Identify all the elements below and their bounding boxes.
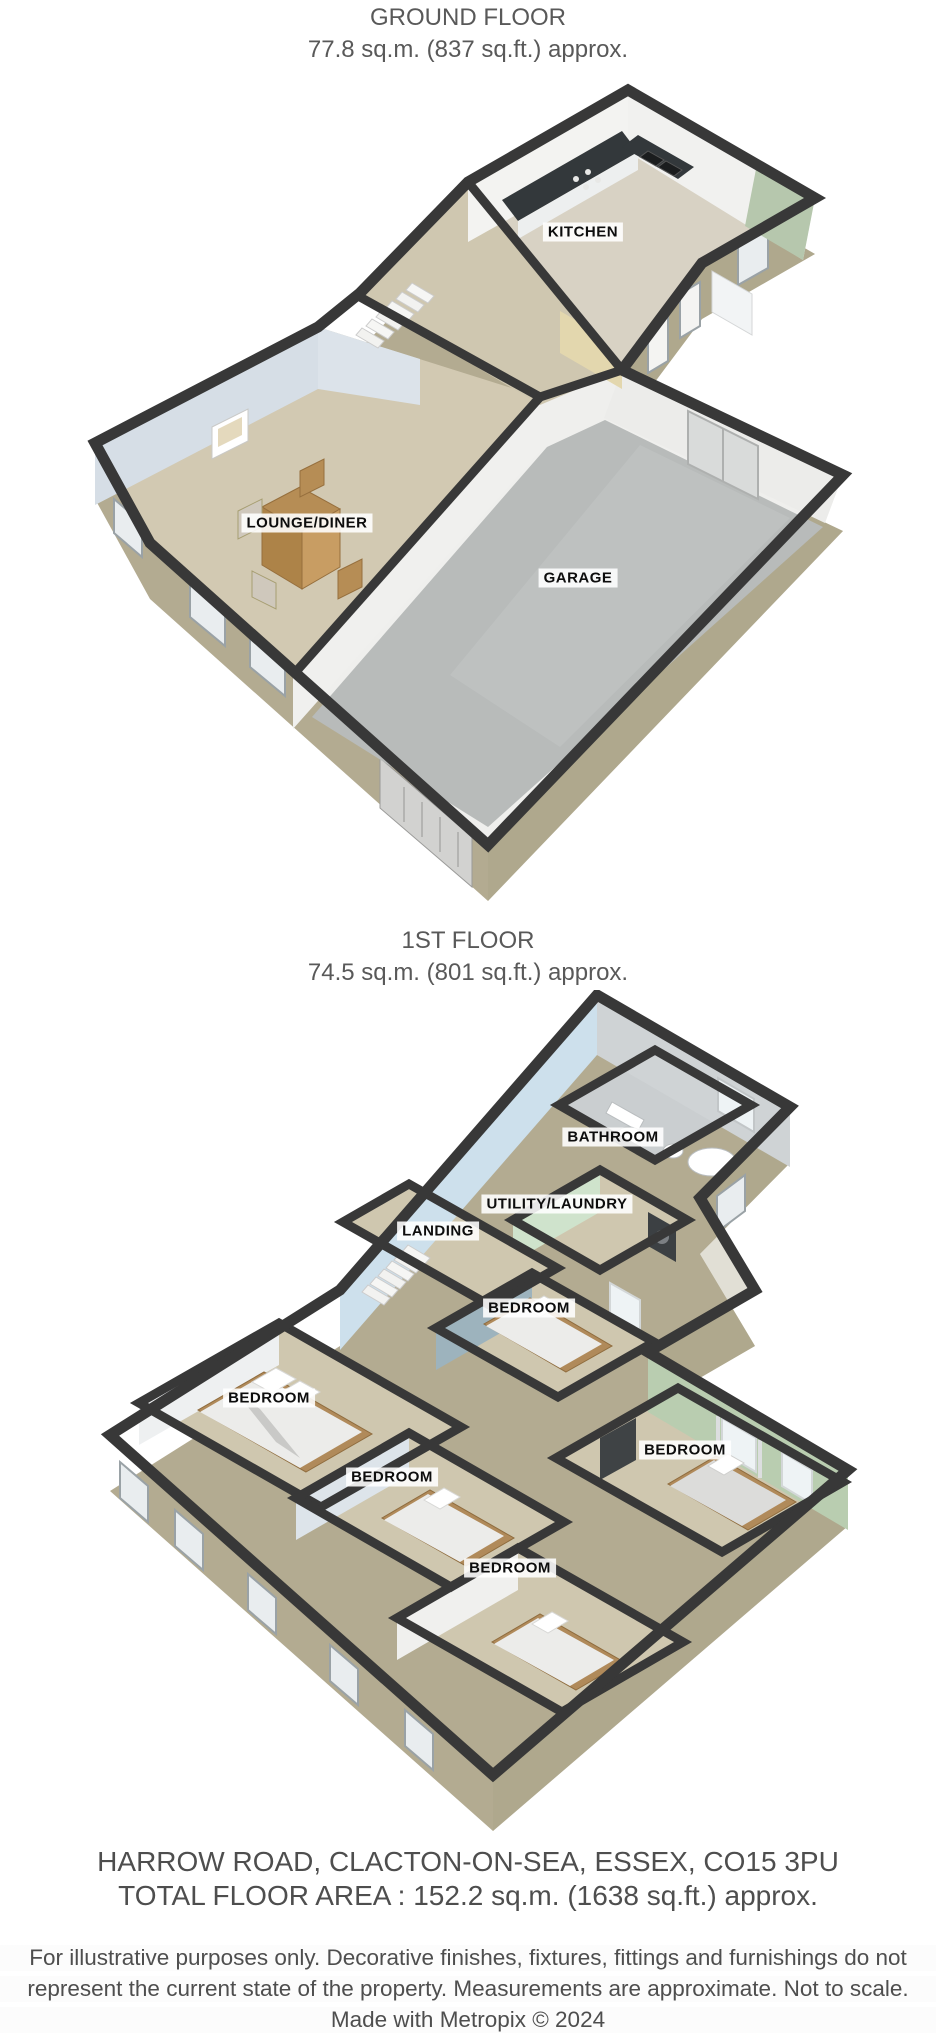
- label-utility-laundry: UTILITY/LAUNDRY: [481, 1195, 632, 1214]
- ground-floor-area: 77.8 sq.m. (837 sq.ft.) approx.: [0, 34, 936, 66]
- footer-total-area: TOTAL FLOOR AREA : 152.2 sq.m. (1638 sq.…: [0, 1880, 936, 1912]
- footer-disclaimer-line1: For illustrative purposes only. Decorati…: [0, 1945, 936, 1971]
- label-bathroom: BATHROOM: [562, 1128, 663, 1147]
- first-floor-title: 1ST FLOOR: [0, 925, 936, 957]
- label-bedroom-right: BEDROOM: [639, 1441, 731, 1460]
- label-bedroom-middle: BEDROOM: [483, 1299, 575, 1318]
- label-bedroom-bottom: BEDROOM: [464, 1559, 556, 1578]
- footer-disclaimer-line2: represent the current state of the prope…: [0, 1976, 936, 2002]
- label-lounge-diner: LOUNGE/DINER: [241, 514, 372, 533]
- label-garage: GARAGE: [539, 569, 618, 588]
- label-landing: LANDING: [397, 1222, 479, 1241]
- floorplan-page: GROUND FLOOR 77.8 sq.m. (837 sq.ft.) app…: [0, 0, 936, 2040]
- label-bedroom-center: BEDROOM: [346, 1468, 438, 1487]
- first-floor-plan: [0, 990, 936, 1840]
- ground-floor-title: GROUND FLOOR: [0, 2, 936, 34]
- footer-credit: Made with Metropix © 2024: [0, 2007, 936, 2033]
- label-kitchen: KITCHEN: [543, 223, 623, 242]
- ground-floor-plan: [0, 75, 936, 935]
- first-floor-area: 74.5 sq.m. (801 sq.ft.) approx.: [0, 957, 936, 989]
- label-bedroom-left: BEDROOM: [223, 1389, 315, 1408]
- footer-address: HARROW ROAD, CLACTON-ON-SEA, ESSEX, CO15…: [0, 1846, 936, 1878]
